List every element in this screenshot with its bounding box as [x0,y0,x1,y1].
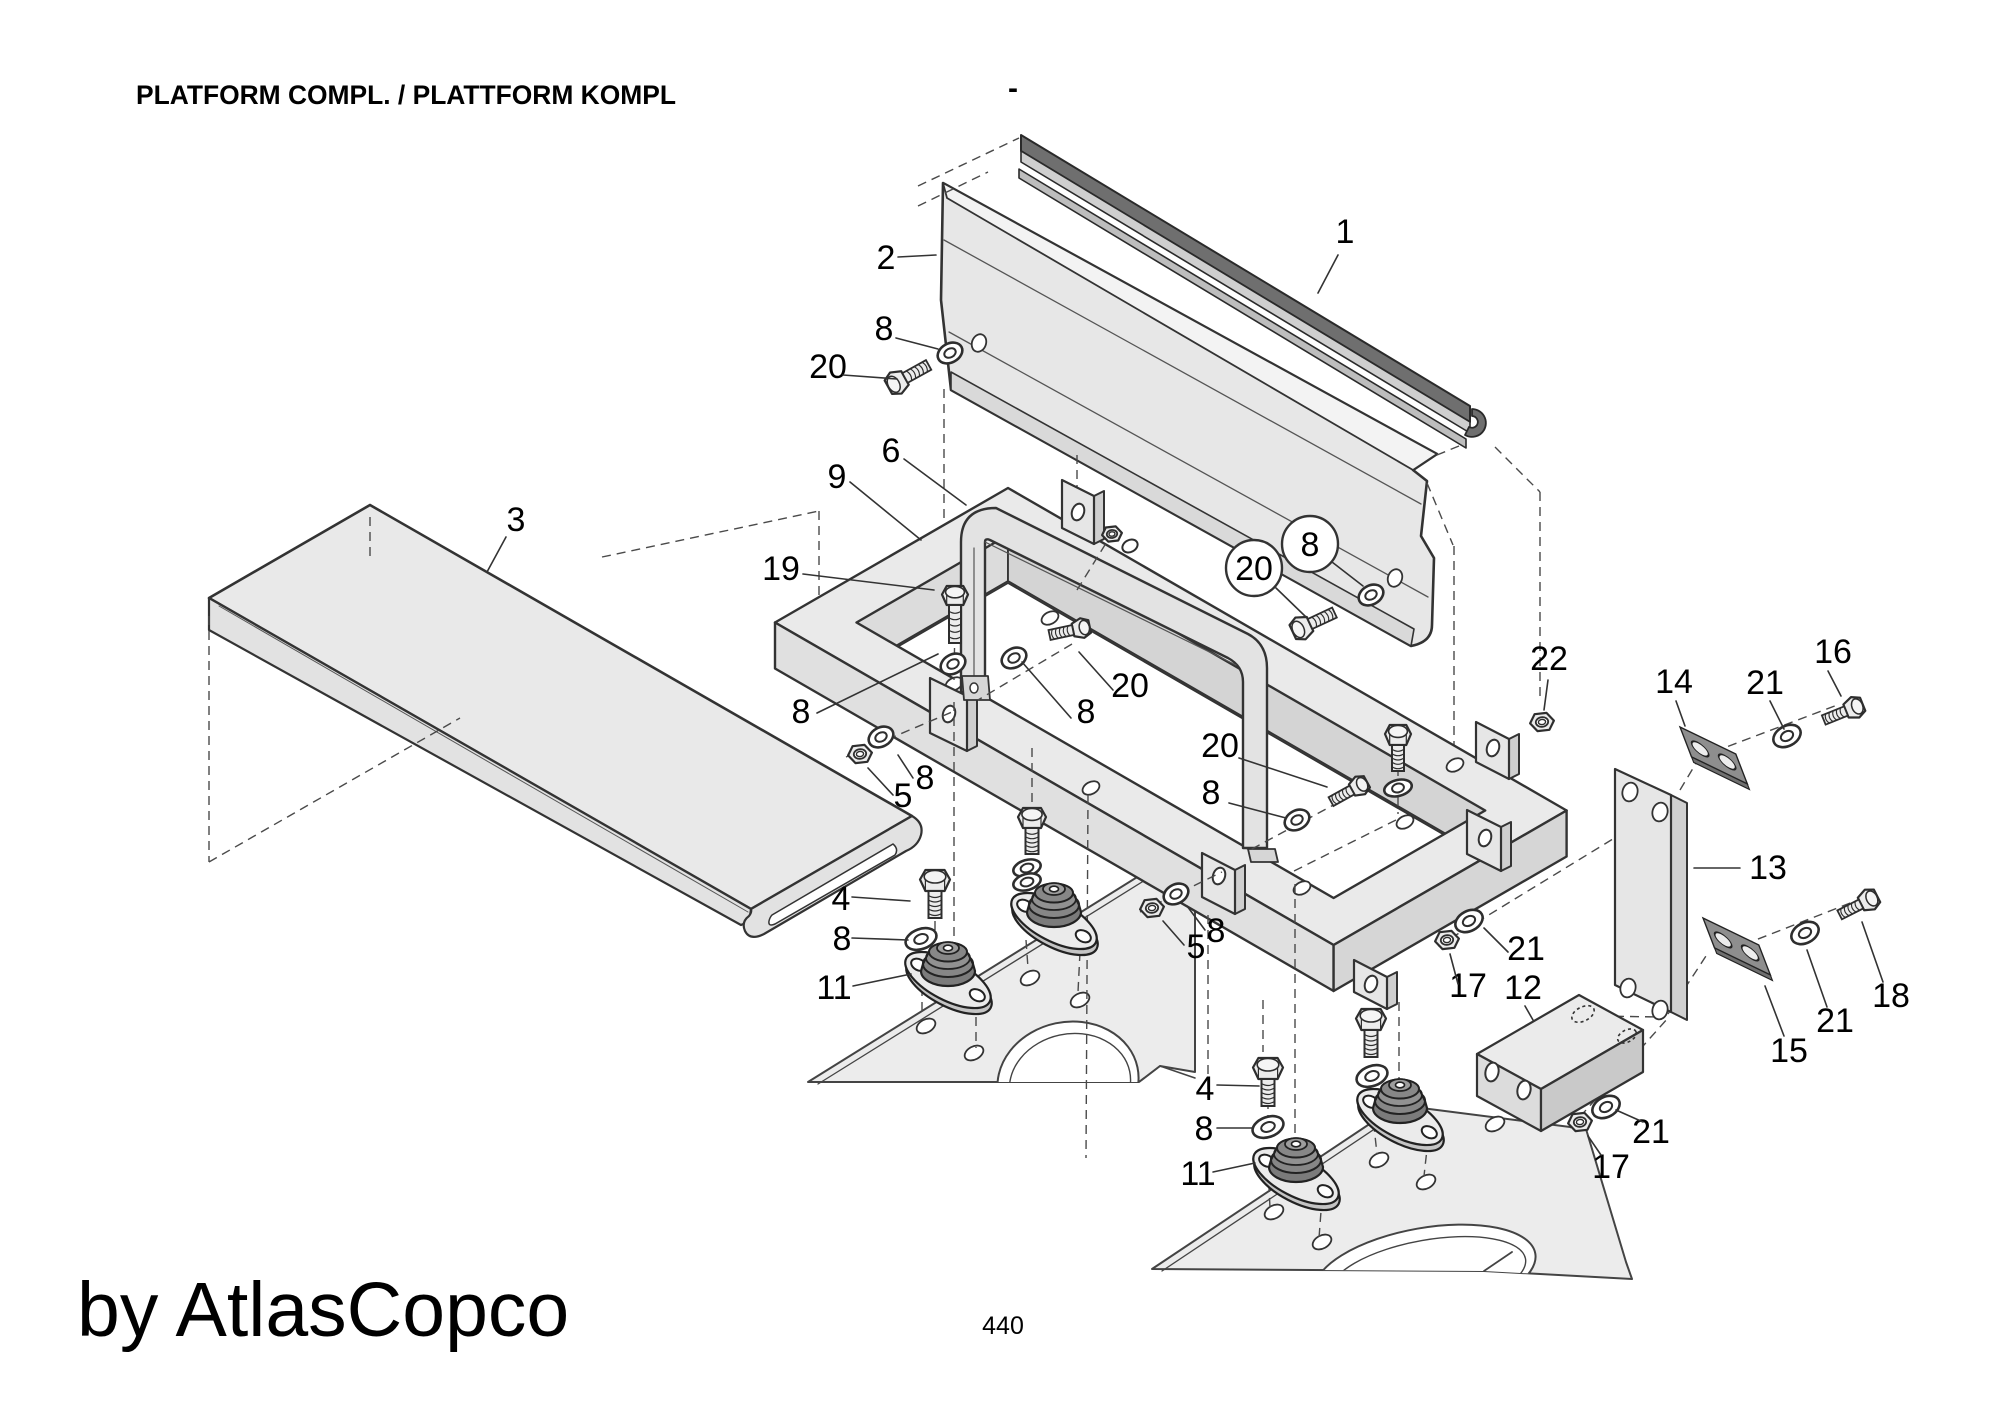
svg-text:4: 4 [1196,1070,1215,1108]
svg-text:8: 8 [1301,526,1320,564]
svg-text:17: 17 [1592,1148,1630,1186]
svg-text:18: 18 [1872,977,1910,1015]
svg-text:20: 20 [809,348,847,386]
svg-text:8: 8 [1077,693,1096,731]
svg-text:9: 9 [828,458,847,496]
svg-text:15: 15 [1770,1032,1808,1070]
svg-text:16: 16 [1814,633,1852,671]
svg-text:8: 8 [792,693,811,731]
svg-text:8: 8 [875,310,894,348]
svg-text:4: 4 [832,880,851,918]
svg-text:12: 12 [1504,969,1542,1007]
svg-text:21: 21 [1746,664,1784,702]
svg-text:19: 19 [762,550,800,588]
svg-text:21: 21 [1507,930,1545,968]
svg-text:20: 20 [1111,667,1149,705]
svg-text:8: 8 [1195,1110,1214,1148]
svg-text:13: 13 [1749,849,1787,887]
svg-text:3: 3 [507,501,526,539]
svg-text:440: 440 [982,1312,1024,1340]
svg-text:1: 1 [1336,213,1355,251]
svg-text:11: 11 [1180,1155,1215,1193]
svg-text:8: 8 [916,759,935,797]
svg-text:6: 6 [882,432,901,470]
svg-text:2: 2 [877,239,896,277]
svg-text:8: 8 [1202,774,1221,812]
svg-text:8: 8 [833,920,852,958]
svg-text:5: 5 [894,777,913,815]
svg-text:21: 21 [1816,1002,1854,1040]
svg-text:22: 22 [1530,640,1568,678]
svg-text:21: 21 [1632,1113,1670,1151]
svg-text:-: - [1008,72,1018,105]
svg-text:by AtlasCopco: by AtlasCopco [77,1267,569,1353]
svg-text:20: 20 [1235,550,1273,588]
svg-text:11: 11 [816,969,851,1007]
svg-text:14: 14 [1655,663,1693,701]
svg-text:PLATFORM COMPL. / PLATTFORM KO: PLATFORM COMPL. / PLATTFORM KOMPL [136,80,676,110]
svg-text:5: 5 [1187,928,1206,966]
svg-text:8: 8 [1207,912,1226,950]
svg-text:20: 20 [1201,727,1239,765]
